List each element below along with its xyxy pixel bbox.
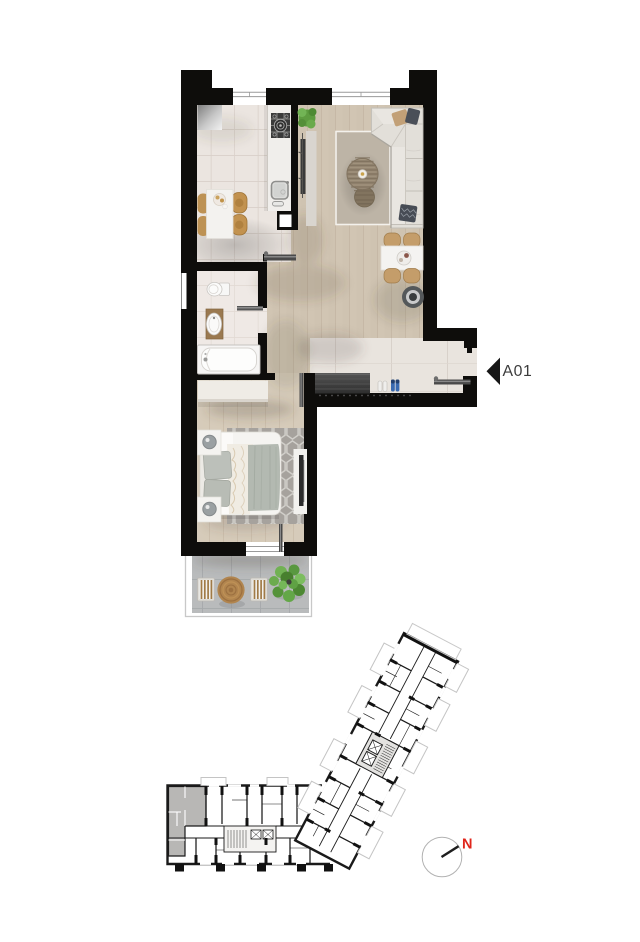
svg-text:A01: A01 <box>503 363 533 380</box>
svg-text:N: N <box>462 837 472 853</box>
